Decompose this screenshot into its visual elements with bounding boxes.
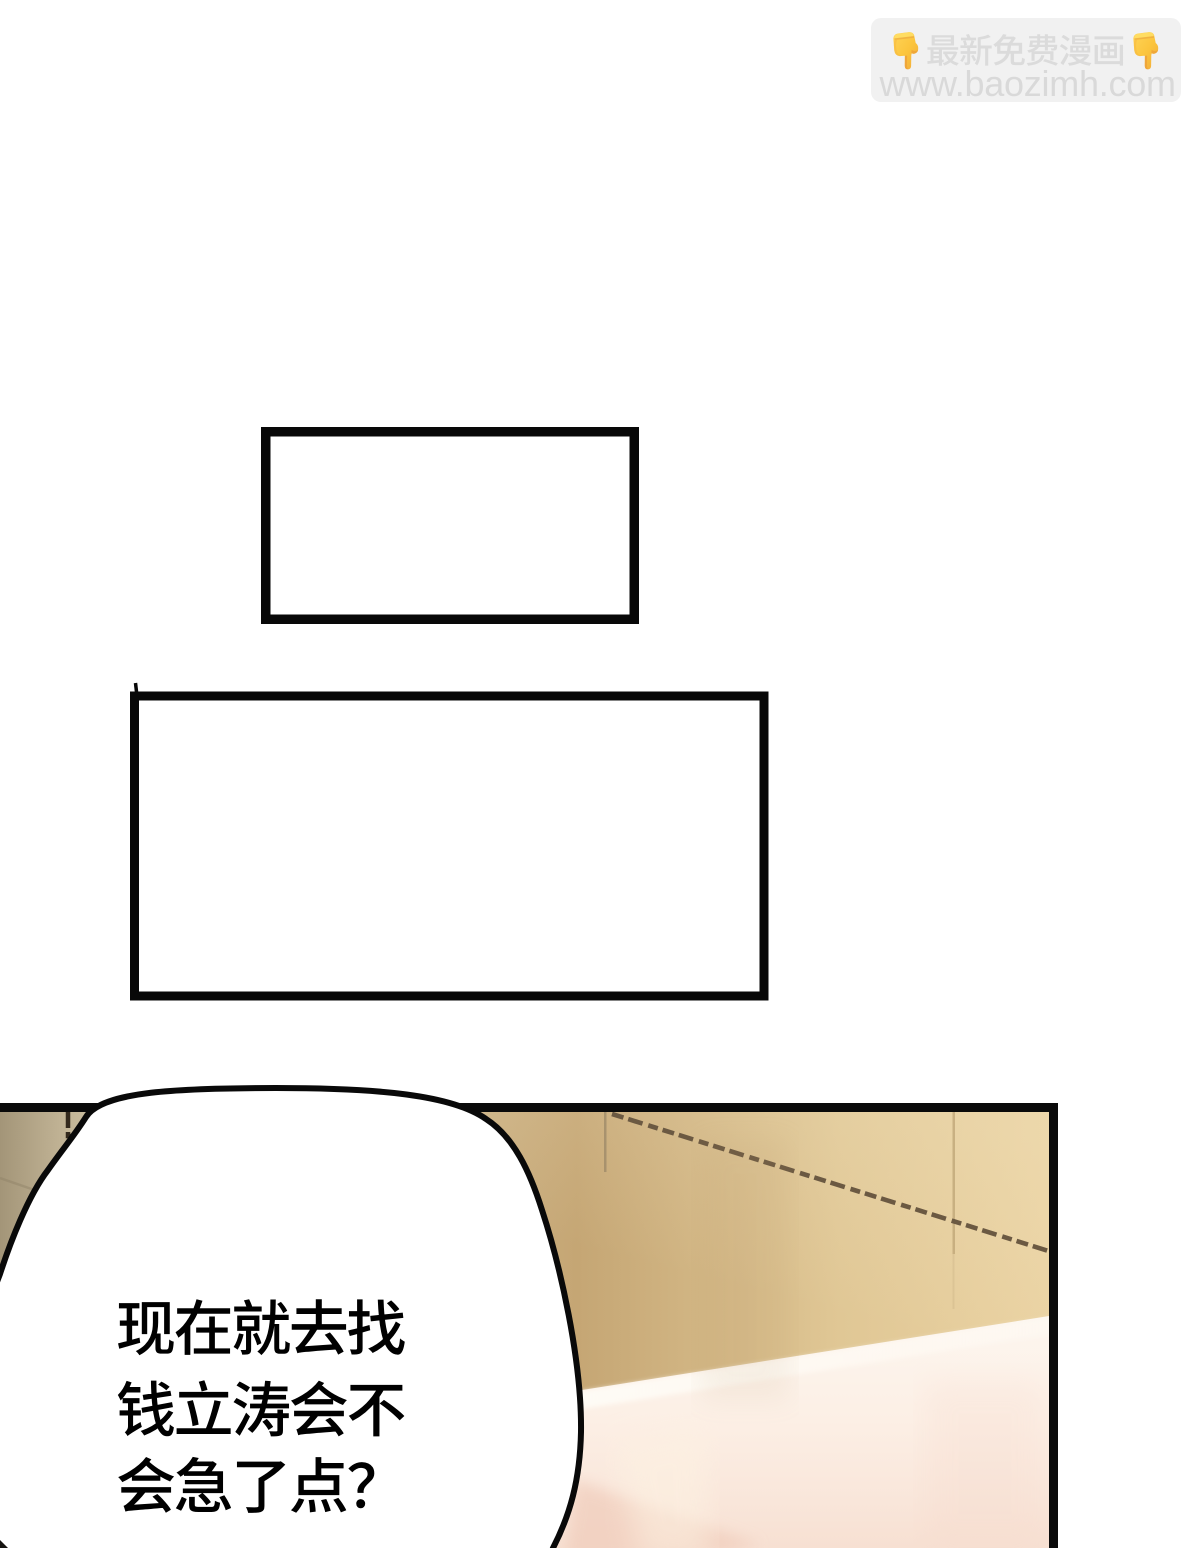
svg-text:www.baozimh.com: www.baozimh.com [879, 63, 1177, 104]
